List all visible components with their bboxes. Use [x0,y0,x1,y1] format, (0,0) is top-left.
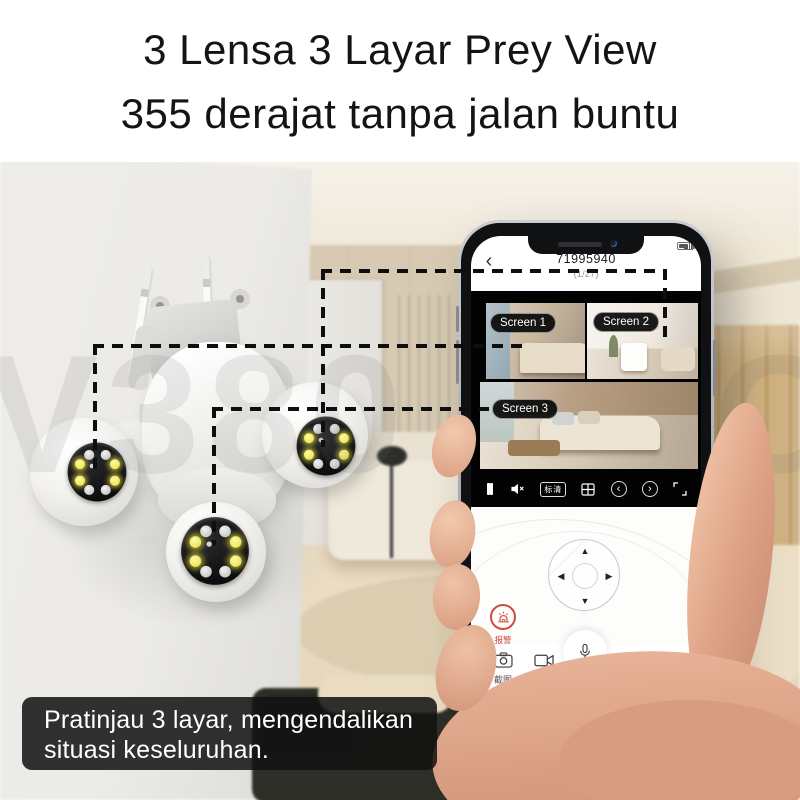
camera-view-2[interactable]: Screen 2 [587,303,698,379]
screen-1-label: Screen 1 [490,313,556,333]
ptz-panel: ▲ ▼ ◀ ▶ 报警 [471,507,701,648]
view-furniture [621,343,647,371]
camera-view-3[interactable]: Screen 3 [480,382,698,469]
annotation-line-lens1-to-screen1 [93,344,523,348]
annotation-line-screen2-drop [663,269,667,345]
view-furniture [578,411,600,424]
device-id: 71995940 [471,252,701,266]
annotation-line-lens3-vertical [212,407,216,545]
annotation-line-lens1-vertical [93,344,97,470]
product-image: V380 PRO ‹ 71995940 (1/27) [0,0,800,800]
multiview-button[interactable] [581,483,595,496]
mute-button[interactable] [510,482,525,496]
caption-line-1: Pratinjau 3 layar, mengendalikan [44,705,437,735]
smartphone: ‹ 71995940 (1/27) Screen 1 Screen 2 [458,220,714,704]
annotation-line-lens2-vertical [321,269,325,447]
earpiece-speaker [558,242,602,247]
view-furniture [609,335,618,357]
page-title-line-2: 355 derajat tanpa jalan buntu [0,90,800,138]
battery-icon [677,242,693,250]
ptz-down-button[interactable]: ▼ [578,595,592,607]
alarm-button[interactable] [490,604,516,630]
annotation-line-lens2-to-screen2 [321,269,667,273]
selfie-camera [610,240,617,247]
fullscreen-button[interactable] [673,482,687,496]
quality-badge[interactable]: 标清 [540,482,566,497]
caption-box: Pratinjau 3 layar, mengendalikan situasi… [22,697,437,770]
view-furniture [508,440,560,456]
caption-line-2: situasi keseluruhan. [44,735,437,765]
video-control-bar: 标清 ‹ › [471,471,701,507]
camera-view-1[interactable]: Screen 1 [486,303,585,379]
phone-bezel: ‹ 71995940 (1/27) Screen 1 Screen 2 [461,223,711,701]
prev-screen-button[interactable]: ‹ [611,481,627,497]
title-band: 3 Lensa 3 Layar Prey View 355 derajat ta… [0,0,800,162]
ptz-right-button[interactable]: ▶ [602,570,616,582]
page-title-line-1: 3 Lensa 3 Layar Prey View [0,26,800,74]
siren-icon [496,610,511,624]
screen-2-label: Screen 2 [593,312,659,332]
ptz-center [572,563,598,589]
pause-button[interactable] [485,483,495,495]
screen-3-label: Screen 3 [492,399,558,419]
power-button [713,340,716,396]
annotation-line-lens3-to-screen3 [212,407,497,411]
view-furniture [661,347,695,371]
ptz-left-button[interactable]: ◀ [554,570,568,582]
ptz-pad[interactable]: ▲ ▼ ◀ ▶ [548,539,620,611]
ptz-up-button[interactable]: ▲ [578,545,592,557]
volume-button [456,306,459,332]
next-screen-button[interactable]: › [642,481,658,497]
view-furniture [520,343,585,373]
